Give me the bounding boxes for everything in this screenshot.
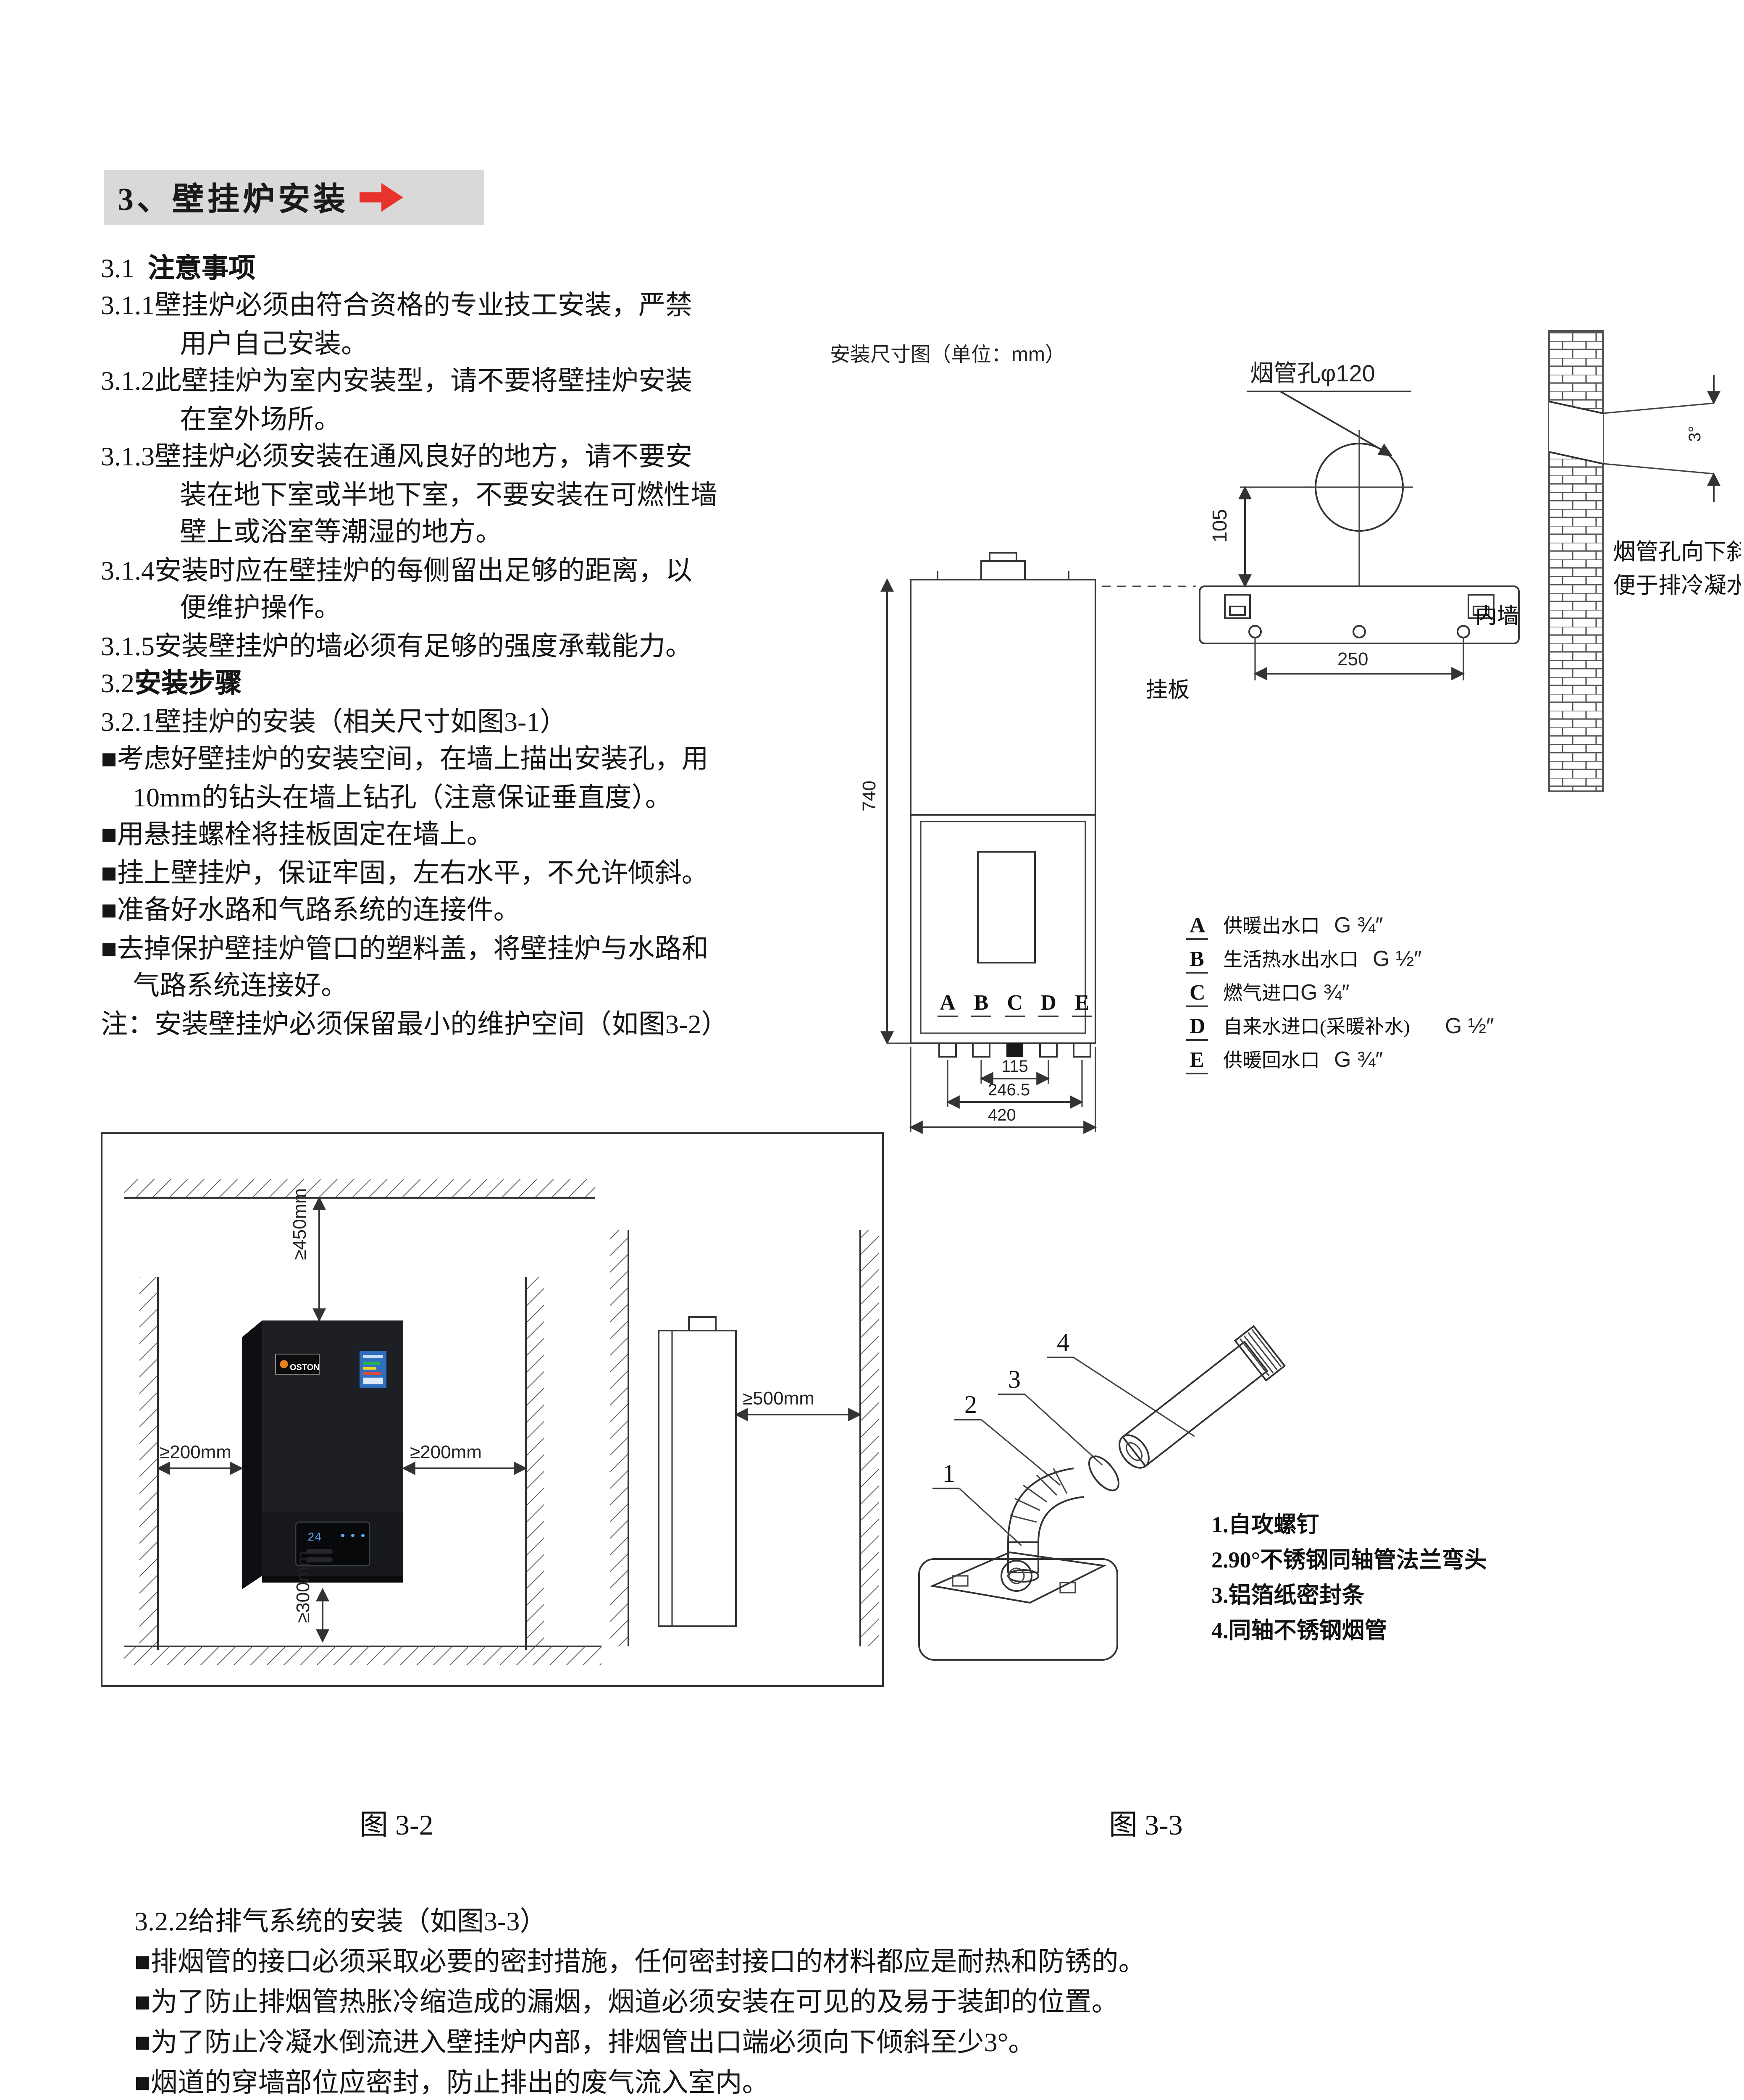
fig31-unit-note: 安装尺寸图（单位：mm） [830,344,1065,366]
fig31-port-stubs [939,1043,1090,1057]
fig31-dim-246-5: 246.5 [988,1081,1030,1099]
svg-text:生活热水出水口: 生活热水出水口 [1223,949,1358,970]
text-line: 在室外场所。 [180,396,341,437]
svg-text:燃气进口: 燃气进口 [1223,982,1300,1004]
fig32-boiler-photo: OSTON 24 [242,1320,403,1589]
fig31-plate-label: 挂板 [1146,678,1190,702]
text-line: 装在地下室或半地下室，不要安装在可燃性墙 [180,472,717,512]
svg-text:G ½″: G ½″ [1445,1014,1494,1038]
text-line: 气路系统连接好。 [133,963,348,1003]
fig33-callout-4: 4 [1057,1328,1069,1356]
fig33-legend-4: 4.同轴不锈钢烟管 [1211,1618,1387,1643]
fig33-elbow [1008,1468,1084,1582]
fig33-legend-2: 2.90°不锈钢同轴管法兰弯头 [1211,1547,1487,1572]
text-line: 用户自己安装。 [180,321,368,361]
fig33-legend-1: 1.自攻螺钉 [1211,1512,1319,1537]
text-line: 3.2.1壁挂炉的安装（相关尺寸如图3-1） [101,699,567,739]
svg-text:自来水进口(采暖补水): 自来水进口(采暖补水) [1223,1016,1410,1037]
svg-text:C: C [1007,991,1023,1015]
figure-3-5: ≥300mm ≥300mm [1008,1949,1579,2100]
fig31-inner-wall-label: 内墙 [1475,604,1519,628]
fig32-energy-label [360,1351,386,1388]
text-line: 3.1.3壁挂炉必须安装在通风良好的地方，请不要安 [101,433,692,474]
fig31-flue-hole-label: 烟管孔φ120 [1250,360,1375,386]
svg-text:G ½″: G ½″ [1373,947,1422,971]
manual-page: 3、壁挂炉安装 3.1 注意事项 3.1.1壁挂炉必须由符合资格的专业技工安装，… [0,0,1744,2100]
svg-text:G ¾″: G ¾″ [1300,980,1350,1005]
fig33-callout-1: 1 [943,1459,955,1487]
text-line: 10mm的钻头在墙上钻孔（注意保证垂直度）。 [133,774,672,815]
fig31-boiler-front [911,553,1095,1043]
red-arrow-icon [359,183,402,212]
svg-text:A: A [940,991,956,1015]
fig33-callout-2: 2 [964,1391,977,1418]
section-title-bar: 3、壁挂炉安装 [104,170,484,225]
fig33-boiler-top [919,1552,1117,1660]
heading-3-1: 3.1 注意事项 [101,245,255,286]
svg-text:D: D [1040,991,1056,1015]
svg-text:E: E [1075,991,1090,1015]
text-line: ■挂上壁挂炉，保证牢固，左右水平，不允许倾斜。 [101,850,709,890]
figure-3-3: 4 3 2 1 [848,1196,1621,1700]
text-line: 3.1.2此壁挂炉为室内安装型，请不要将壁挂炉安装 [101,358,692,398]
svg-text:G ¾″: G ¾″ [1334,913,1383,937]
text-line: ■用悬挂螺栓将挂板固定在墙上。 [101,811,494,852]
fig32-left-clearance: ≥200mm [160,1442,231,1462]
text-line: 注：安装壁挂炉必须保留最小的维护空间（如图3-2） [101,1001,728,1042]
text-line: ■考虑好壁挂炉的安装空间，在墙上描出安装孔，用 [101,736,709,776]
page-title: 3、壁挂炉安装 [118,175,349,220]
fig33-caption: 图 3-3 [1109,1801,1183,1843]
text-line: 便维护操作。 [180,585,341,625]
text-line: 3.1.4安装时应在壁挂炉的每侧留出足够的距离，以 [101,548,692,588]
svg-text:G ¾″: G ¾″ [1334,1047,1383,1072]
text-line: 3.1.5安装壁挂炉的墙必须有足够的强度承载能力。 [101,623,692,664]
text-line: ■去掉保护壁挂炉管口的塑料盖，将壁挂炉与水路和 [101,926,709,966]
fig32-brand-logo: OSTON [290,1363,320,1372]
text-line: 壁上或浴室等潮湿的地方。 [180,509,502,549]
svg-text:D: D [1190,1014,1206,1038]
fig33-seal-ring [1084,1451,1124,1495]
fig32-top-clearance: ≥450mm [289,1188,310,1260]
fig33-callout-3: 3 [1008,1365,1021,1393]
svg-text:A: A [1190,913,1206,937]
figure-3-2: ≥450mm OSTON 24 ≥200m [101,1132,884,1687]
fig31-dim-250: 250 [1337,649,1368,669]
fig31-dim-105: 105 [1209,509,1231,543]
svg-text:B: B [1190,947,1204,971]
fig31-wall-note-1: 烟管孔向下斜3度 [1613,539,1741,564]
svg-text:供暖出水口: 供暖出水口 [1223,915,1320,937]
fig31-wall-plate [1200,586,1519,643]
fig32-brand-flame-icon [280,1360,288,1368]
fig32-boiler-side-view [659,1317,736,1626]
fig33-coaxial-pipe [1109,1326,1284,1479]
svg-text:E: E [1190,1048,1204,1072]
fig32-display-readout: 24 [307,1531,322,1544]
figure-3-1: 安装尺寸图（单位：mm） 烟管孔φ120 105 250 挂板 [803,307,1741,1147]
text-line: ■准备好水路和气路系统的连接件。 [101,887,520,927]
heading-3-2-2: 3.2.2给排气系统的安装（如图3-3） [134,1898,546,1939]
fig31-ports-legend: A 供暖出水口 G ¾″ B 生活热水出水口 G ½″ C 燃气进口 G ¾″ … [1186,913,1494,1074]
fig33-legend-3: 3.铝箔纸密封条 [1211,1583,1365,1608]
fig31-dim-115: 115 [1001,1057,1028,1076]
text-line: 3.1.1壁挂炉必须由符合资格的专业技工安装，严禁 [101,282,692,323]
svg-text:供暖回水口: 供暖回水口 [1223,1050,1320,1071]
fig31-wall-note-2: 便于排冷凝水！ [1613,573,1741,598]
fig32-bottom-clearance: ≥300mm [293,1551,313,1623]
svg-text:C: C [1190,981,1206,1005]
fig31-angle-label: 3° [1686,426,1704,442]
fig31-dim-740: 740 [859,781,880,811]
fig32-front-clearance: ≥500mm [743,1388,814,1409]
heading-3-2: 3.2安装步骤 [101,660,242,701]
svg-text:B: B [974,991,989,1015]
fig31-dim-420: 420 [988,1106,1016,1124]
fig32-caption: 图 3-2 [360,1801,433,1843]
fig31-port-letters: A B C D E [940,991,1089,1015]
fig32-right-clearance: ≥200mm [410,1442,482,1462]
